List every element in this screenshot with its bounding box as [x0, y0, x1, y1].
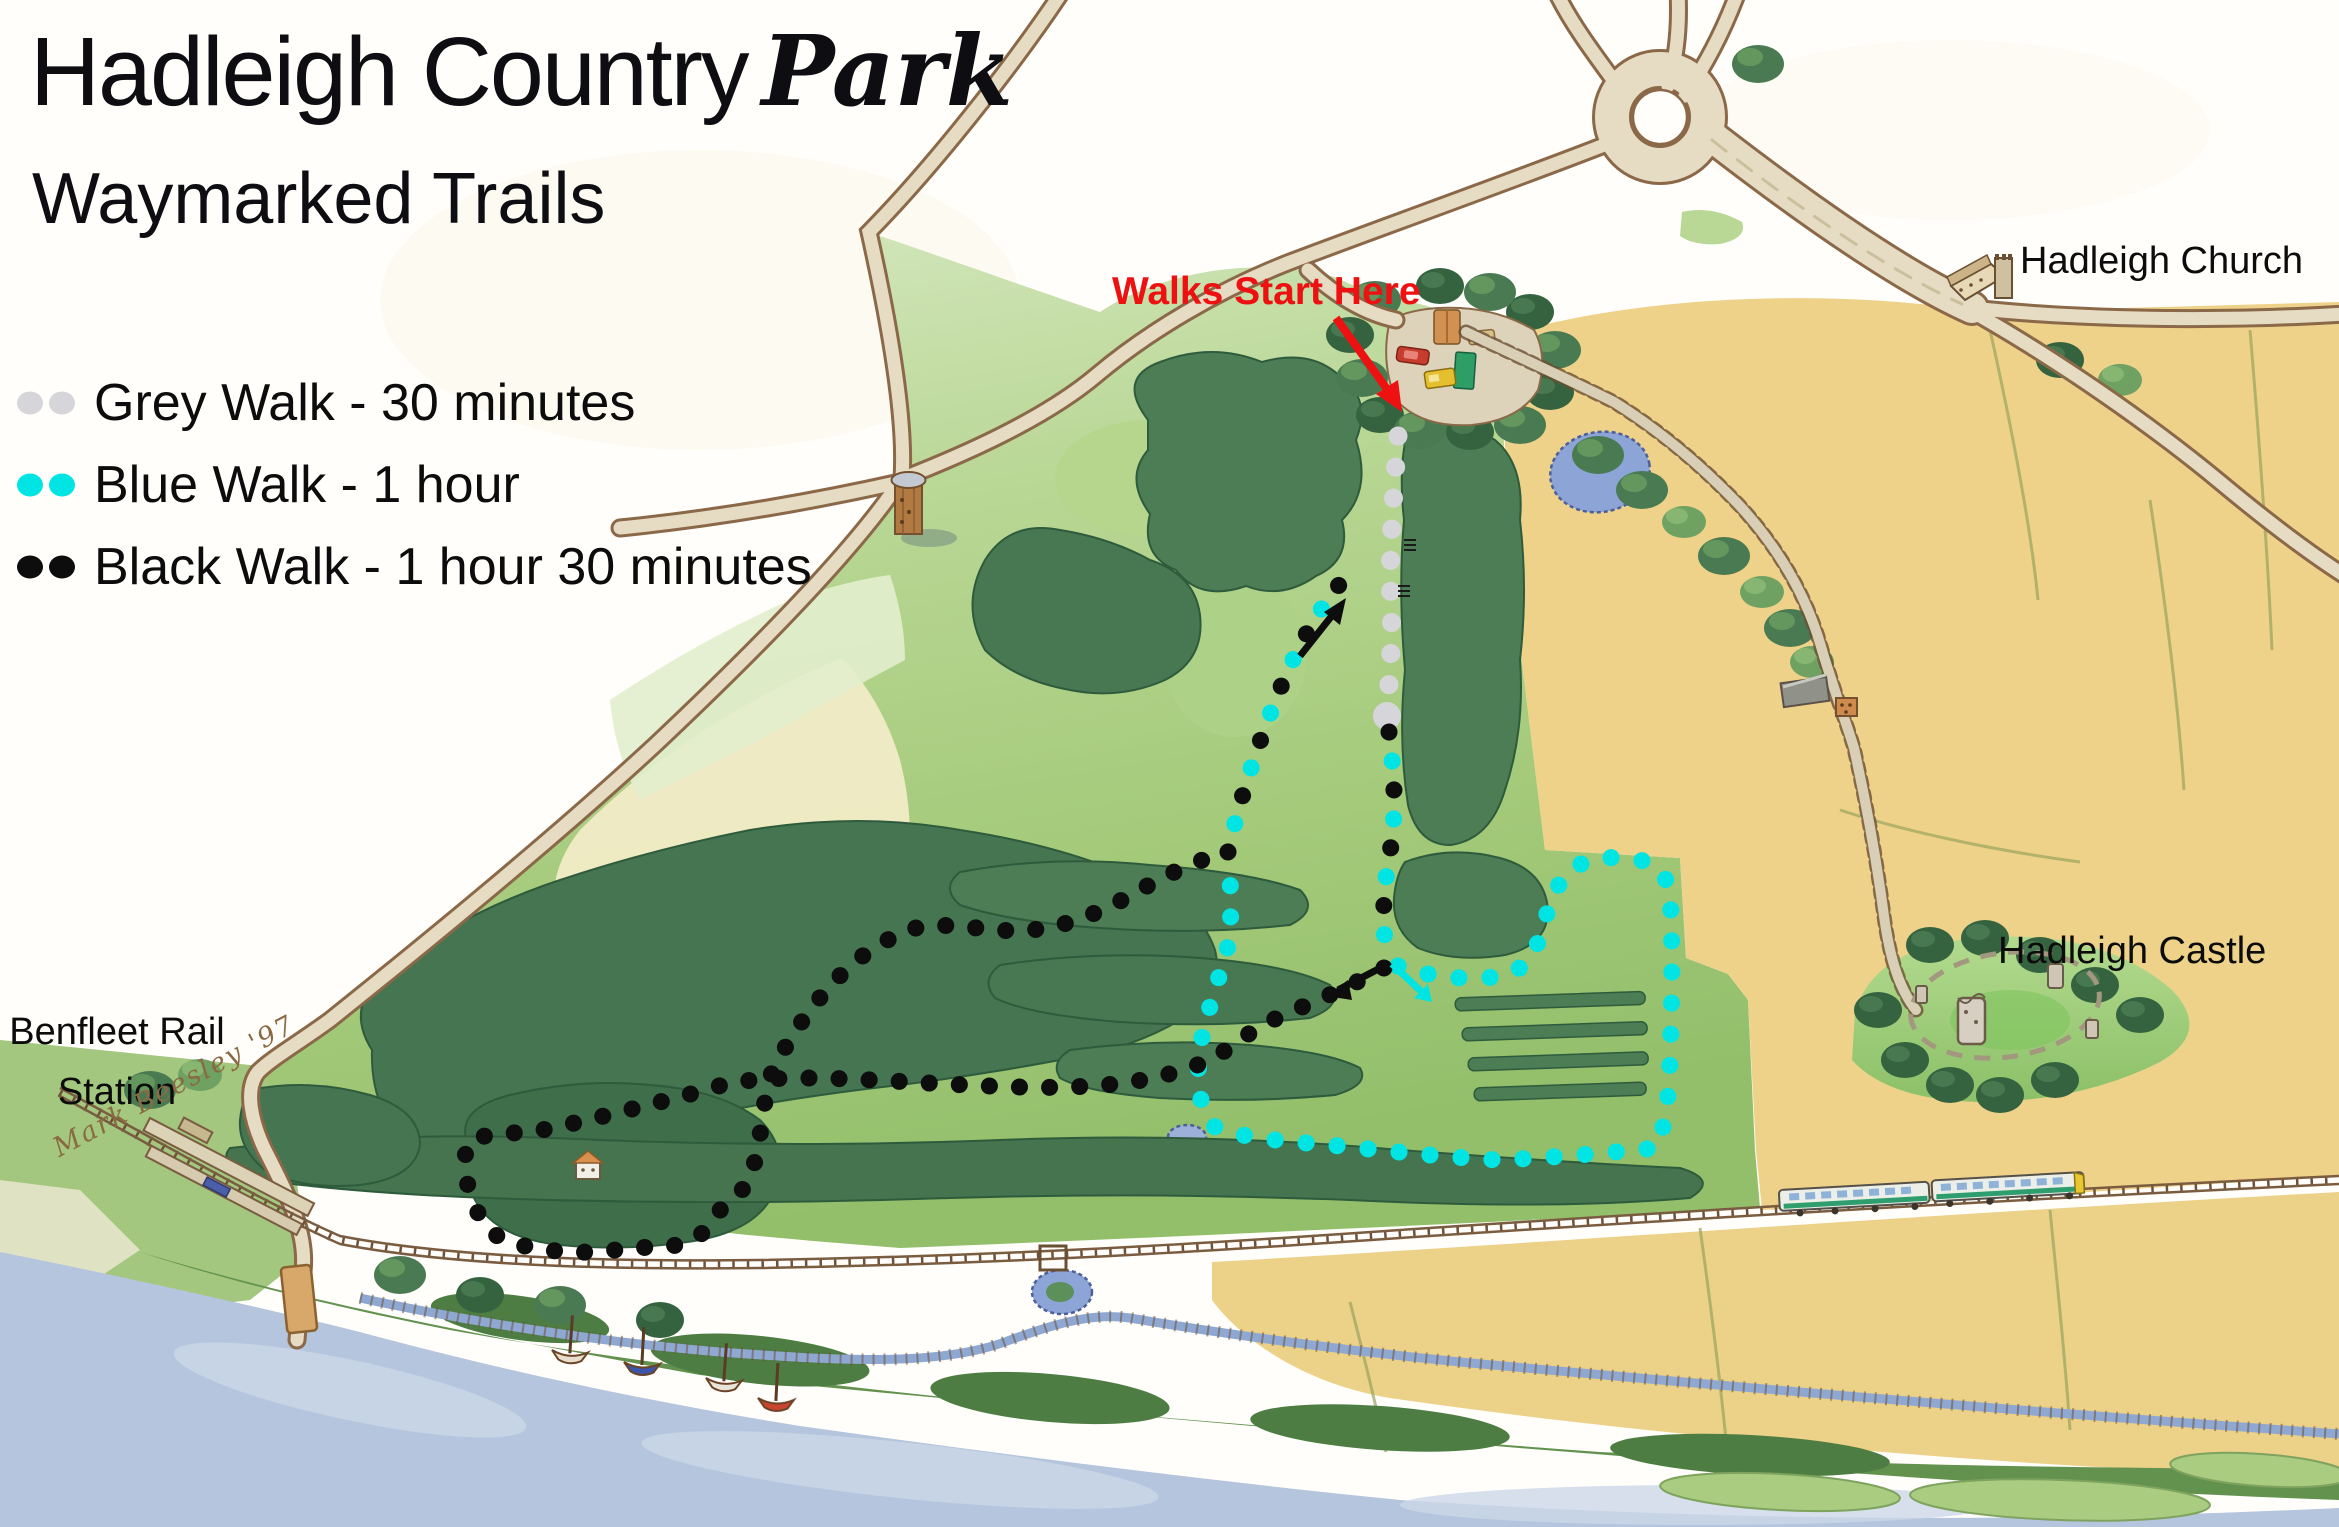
- van-yellow-icon: [1424, 368, 1456, 389]
- legend-row-grey: Grey Walk - 30 minutes: [14, 362, 812, 444]
- black-dots-icon: [14, 552, 84, 582]
- trail-legend: Grey Walk - 30 minutes Blue Walk - 1 hou…: [14, 362, 812, 608]
- woods-north: [1135, 352, 1362, 591]
- creek-bridge: [281, 1265, 318, 1334]
- hut-icon: [1434, 310, 1460, 344]
- woods-loop-north: [1394, 852, 1548, 957]
- map-page: Hadleigh CountryPark Waymarked Trails Gr…: [0, 0, 2339, 1527]
- blue-dots-icon: [14, 470, 84, 500]
- legend-label-blue: Blue Walk - 1 hour: [94, 455, 520, 515]
- church-label: Hadleigh Church: [2020, 240, 2303, 283]
- legend-label-black: Black Walk - 1 hour 30 minutes: [94, 537, 812, 597]
- pond-islet: [1046, 1282, 1074, 1302]
- legend-row-blue: Blue Walk - 1 hour: [14, 444, 812, 526]
- truck-green-icon: [1453, 352, 1475, 389]
- grey-dots-icon: [14, 388, 84, 418]
- woods-east-stem: [1401, 424, 1524, 845]
- page-subtitle: Waymarked Trails: [32, 158, 605, 240]
- castle-label: Hadleigh Castle: [1998, 930, 2266, 973]
- page-title: Hadleigh CountryPark: [30, 14, 1013, 128]
- title-script: Park: [761, 14, 1013, 128]
- roundabout-centre: [1633, 90, 1687, 144]
- legend-label-grey: Grey Walk - 30 minutes: [94, 373, 635, 433]
- station-label-line1: Benfleet Rail: [9, 1011, 224, 1053]
- walks-start-label: Walks Start Here: [1112, 270, 1421, 314]
- title-main: Hadleigh Country: [30, 17, 747, 126]
- legend-row-black: Black Walk - 1 hour 30 minutes: [14, 526, 812, 608]
